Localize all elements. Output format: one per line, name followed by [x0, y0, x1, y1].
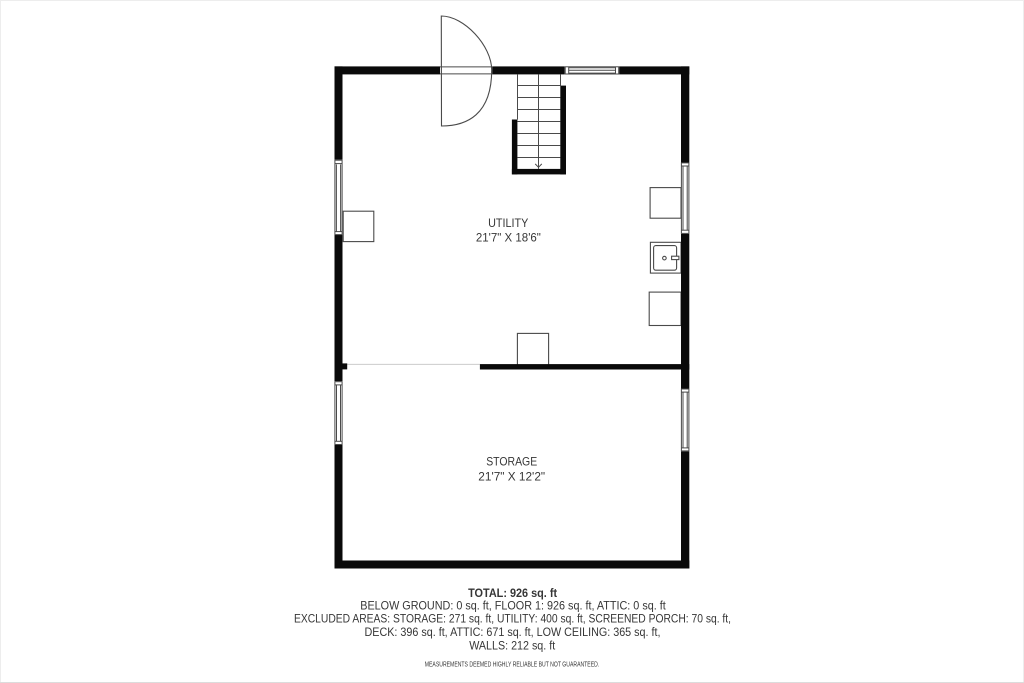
svg-text:WALLS: 212 sq. ft: WALLS: 212 sq. ft: [469, 638, 556, 652]
svg-text:UTILITY: UTILITY: [488, 216, 528, 230]
svg-text:21'7" X 18'6": 21'7" X 18'6": [476, 231, 541, 245]
svg-text:STORAGE: STORAGE: [486, 455, 537, 469]
svg-text:EXCLUDED AREAS: STORAGE: 271 s: EXCLUDED AREAS: STORAGE: 271 sq. ft, UTI…: [294, 612, 731, 626]
svg-text:21'7" X 12'2": 21'7" X 12'2": [478, 470, 545, 484]
svg-text:DECK: 396 sq. ft, ATTIC: 671 s: DECK: 396 sq. ft, ATTIC: 671 sq. ft, LOW…: [365, 625, 661, 639]
svg-text:MEASUREMENTS DEEMED HIGHLY REL: MEASUREMENTS DEEMED HIGHLY RELIABLE BUT …: [425, 661, 600, 668]
svg-text:BELOW GROUND: 0 sq. ft, FLOOR: BELOW GROUND: 0 sq. ft, FLOOR 1: 926 sq.…: [360, 598, 666, 612]
